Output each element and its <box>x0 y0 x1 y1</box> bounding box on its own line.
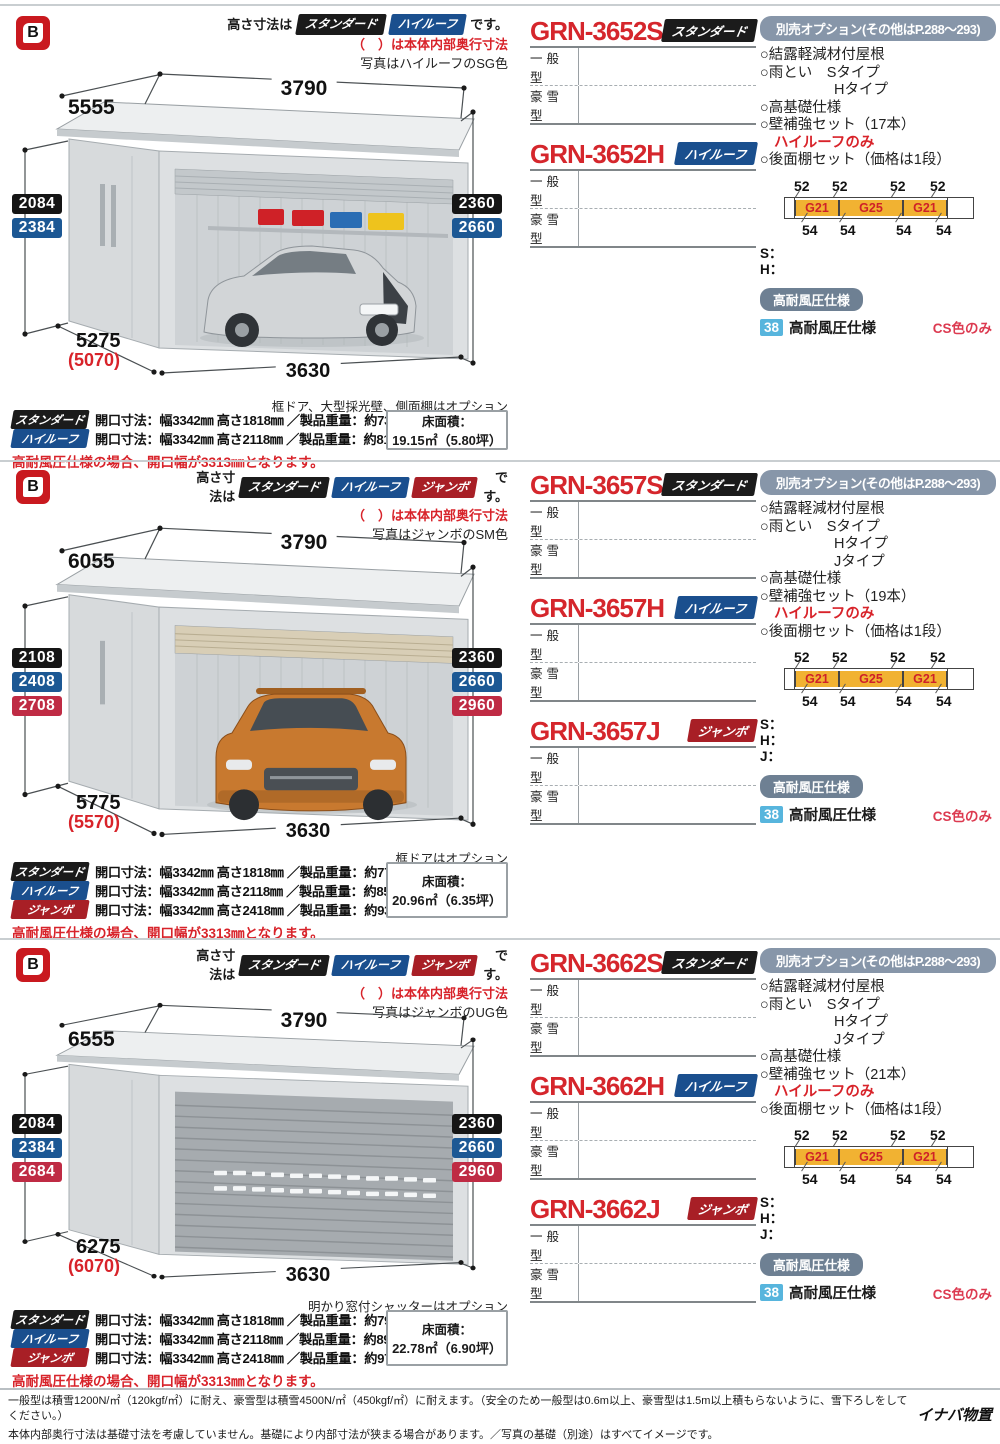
dim-depth-top: 6555 <box>68 1028 115 1052</box>
price-cell <box>578 209 756 246</box>
model-block: GRN-3652H ハイルーフ 一般型 豪雪型 <box>530 139 756 248</box>
brand-b-icon: B <box>16 16 50 50</box>
price-cell <box>578 86 756 123</box>
price-cell <box>578 625 756 662</box>
option-item: ○壁補強セット（17本） <box>760 117 996 135</box>
option-item: ○高基礎仕様 <box>760 1049 996 1067</box>
height-chip: 2384 <box>12 1138 62 1158</box>
model-name: GRN-3662J <box>530 1196 660 1222</box>
badge-highroof: ハイルーフ <box>674 1074 758 1097</box>
dim-depth-inner: (5570) <box>68 812 120 833</box>
height-chips-left: 2084 2384 2684 <box>12 1114 62 1182</box>
options-panel: 別売オプション(その他はP.288～293) ○結露軽減材付屋根 ○雨とい Sタ… <box>760 470 996 825</box>
height-chip: 2408 <box>12 672 62 692</box>
height-chip: 2108 <box>12 648 62 668</box>
options-header: 別売オプション(その他はP.288～293) <box>760 470 996 495</box>
badge-jumbo: ジャンボ <box>687 719 758 742</box>
page-footer: 一般型は積雪1200N/㎡（120kgf/㎡）に耐え、豪雪型は積雪4500N/㎡… <box>0 1388 1000 1444</box>
model-block: GRN-3662S スタンダード 一般型 豪雪型 <box>530 948 756 1057</box>
size-note-prefix: 高さ寸法は <box>227 15 292 34</box>
badge-standard: スタンダード <box>295 14 387 35</box>
dim-width-bottom: 3630 <box>276 820 341 843</box>
height-chip: 2360 <box>452 1114 502 1134</box>
model-name: GRN-3662H <box>530 1073 664 1099</box>
shelf-size-lines: S： H： J： <box>760 1195 996 1243</box>
dim-width-bottom: 3630 <box>276 1264 341 1287</box>
closed-shutter <box>175 1092 453 1261</box>
price-cell <box>578 1103 756 1140</box>
option-item: ○雨とい Sタイプ <box>760 65 996 83</box>
price-table: 一般型 豪雪型 <box>530 625 756 702</box>
price-cell <box>578 171 756 208</box>
spec-badge-highroof: ハイルーフ <box>10 881 89 900</box>
option-note: ハイルーフのみ <box>760 1084 996 1102</box>
model-list: GRN-3662S スタンダード 一般型 豪雪型 GRN-3662H ハイルーフ… <box>530 948 756 1317</box>
option-item: ○壁補強セット（19本） <box>760 589 996 607</box>
height-chips-right: 2360 2660 <box>452 194 502 238</box>
height-chip: 2660 <box>452 1138 502 1158</box>
model-list: GRN-3652S スタンダード 一般型 豪雪型 GRN-3652H ハイルーフ… <box>530 16 756 262</box>
spec-table: スタンダード 開口寸法：幅3342㎜ 高さ1818㎜ ／製品重量：約770kg … <box>12 862 508 942</box>
price-table: 一般型 豪雪型 <box>530 980 756 1057</box>
option-note: ハイルーフのみ <box>760 135 996 153</box>
size-note-suffix: です。 <box>470 15 508 34</box>
height-chip: 2960 <box>452 696 502 716</box>
price-table: 一般型 豪雪型 <box>530 748 756 825</box>
model-name: GRN-3652S <box>530 18 663 44</box>
wind-opening-note: 高耐風圧仕様の場合、開口幅が3313㎜となります。 <box>12 1370 508 1390</box>
brand-b-icon: B <box>16 470 50 504</box>
dim-depth-inner: (6070) <box>68 1256 120 1277</box>
height-chip: 2660 <box>452 672 502 692</box>
cs-color-note: CS色のみ <box>933 1283 992 1303</box>
dim-depth-top: 6055 <box>68 550 115 574</box>
badge-standard: スタンダード <box>661 473 758 496</box>
garage-illustration: 3790 6055 2108 2408 2708 2360 2660 2960 … <box>12 520 506 858</box>
product-section-grn-3662: B 高さ寸法は スタンダード ハイルーフ ジャンボ です。 （ ）は本体内部奥行… <box>0 938 1000 1390</box>
shelf-size-lines: S： H： J： <box>760 717 996 765</box>
page-ref-badge: 38 <box>760 806 783 823</box>
price-cell <box>578 1018 756 1055</box>
height-chip: 2960 <box>452 1162 502 1182</box>
brand-b-icon: B <box>16 948 50 982</box>
shelf-size-lines: S： H： <box>760 246 996 278</box>
badge-jumbo: ジャンボ <box>687 1197 758 1220</box>
model-list: GRN-3657S スタンダード 一般型 豪雪型 GRN-3657H ハイルーフ… <box>530 470 756 839</box>
model-name: GRN-3657H <box>530 595 664 621</box>
spec-badge-highroof: ハイルーフ <box>10 1329 89 1348</box>
height-chips-left: 2084 2384 <box>12 194 62 238</box>
spec-badge-jumbo: ジャンボ <box>10 1348 89 1367</box>
option-item: ○雨とい Sタイプ <box>760 997 996 1015</box>
option-subitem: Jタイプ <box>760 1032 996 1050</box>
brand-b-letter: B <box>23 23 43 43</box>
height-chip: 2360 <box>452 648 502 668</box>
rear-shelf-diagram: 52 52 52 52 G21 G25 G21 54 54 54 54 <box>784 649 980 713</box>
option-item: ○雨とい Sタイプ <box>760 519 996 537</box>
brand-b-letter: B <box>23 955 43 975</box>
model-name: GRN-3652H <box>530 141 664 167</box>
rear-shelf-diagram: 52 52 52 52 G21 G25 G21 54 54 54 54 <box>784 178 980 242</box>
model-name: GRN-3662S <box>530 950 663 976</box>
price-cell <box>578 663 756 700</box>
dim-width-top: 3790 <box>272 1009 337 1033</box>
model-name: GRN-3657S <box>530 472 663 498</box>
spec-table: スタンダード 開口寸法：幅3342㎜ 高さ1818㎜ ／製品重量：約797kg … <box>12 1310 508 1390</box>
option-subitem: Hタイプ <box>760 82 996 100</box>
catalog-page: B 高さ寸法は スタンダード ハイルーフ です。 （ ）は本体内部奥行寸法 写真… <box>0 0 1000 1444</box>
price-cell <box>578 540 756 577</box>
price-cell <box>578 748 756 785</box>
height-chip: 2708 <box>12 696 62 716</box>
options-panel: 別売オプション(その他はP.288～293) ○結露軽減材付屋根 ○雨とい Sタ… <box>760 948 996 1303</box>
height-chip: 2384 <box>12 218 62 238</box>
inner-depth-note: （ ）は本体内部奥行寸法 <box>190 35 508 54</box>
price-cell <box>578 502 756 539</box>
model-block: GRN-3652S スタンダード 一般型 豪雪型 <box>530 16 756 125</box>
price-cell <box>578 980 756 1017</box>
spec-badge-standard: スタンダード <box>10 410 89 429</box>
option-item: ○結露軽減材付屋根 <box>760 501 996 519</box>
footer-note-2: 本体内部奥行寸法は基礎寸法を考慮していません。基礎により内部寸法が狭まる場合があ… <box>8 1428 992 1443</box>
price-cell <box>578 1226 756 1263</box>
price-table: 一般型 豪雪型 <box>530 171 756 248</box>
option-item: ○高基礎仕様 <box>760 571 996 589</box>
wind-spec-row: 38 高耐風圧仕様 CS色のみ <box>760 804 996 825</box>
badge-standard: スタンダード <box>661 951 758 974</box>
cs-color-note: CS色のみ <box>933 805 992 825</box>
dim-width-bottom: 3630 <box>276 360 341 383</box>
spec-badge-standard: スタンダード <box>10 862 89 881</box>
height-chip: 2660 <box>452 218 502 238</box>
wind-spec-header: 高耐風圧仕様 <box>760 288 863 311</box>
option-subitem: Hタイプ <box>760 1014 996 1032</box>
spec-badge-highroof: ハイルーフ <box>10 429 89 448</box>
height-chips-left: 2108 2408 2708 <box>12 648 62 716</box>
footer-note-1: 一般型は積雪1200N/㎡（120kgf/㎡）に耐え、豪雪型は積雪4500N/㎡… <box>8 1394 992 1424</box>
badge-highroof: ハイルーフ <box>331 477 410 498</box>
option-subitem: Jタイプ <box>760 554 996 572</box>
option-item: ○後面棚セット（価格は1段） <box>760 624 996 642</box>
option-note: ハイルーフのみ <box>760 606 996 624</box>
option-item: ○高基礎仕様 <box>760 100 996 118</box>
option-item: ○後面棚セット（価格は1段） <box>760 1102 996 1120</box>
height-chip: 2084 <box>12 1114 62 1134</box>
dim-width-top: 3790 <box>272 77 337 101</box>
height-chip: 2084 <box>12 194 62 214</box>
wind-spec-header: 高耐風圧仕様 <box>760 775 863 798</box>
wind-spec-row: 38 高耐風圧仕様 CS色のみ <box>760 1282 996 1303</box>
badge-jumbo: ジャンボ <box>411 955 478 976</box>
model-block: GRN-3657S スタンダード 一般型 豪雪型 <box>530 470 756 579</box>
badge-jumbo: ジャンボ <box>411 477 478 498</box>
cs-color-note: CS色のみ <box>933 317 992 337</box>
brand-b-letter: B <box>23 477 43 497</box>
badge-standard: スタンダード <box>661 19 758 42</box>
option-item: ○結露軽減材付屋根 <box>760 47 996 65</box>
option-item: ○結露軽減材付屋根 <box>760 979 996 997</box>
floor-area-box: 床面積： 20.96㎡（6.35坪） <box>386 862 508 918</box>
floor-area-box: 床面積： 19.15㎡（5.80坪） <box>386 410 508 450</box>
inaba-logo: イナバ物置 <box>917 1404 992 1425</box>
dim-width-top: 3790 <box>272 531 337 555</box>
model-block: GRN-3662H ハイルーフ 一般型 豪雪型 <box>530 1071 756 1180</box>
wind-spec-row: 38 高耐風圧仕様 CS色のみ <box>760 317 996 338</box>
garage-illustration: 3790 6555 2084 2384 2684 2360 2660 2960 … <box>12 998 506 1298</box>
height-chips-right: 2360 2660 2960 <box>452 1114 502 1182</box>
badge-standard: スタンダード <box>238 477 330 498</box>
option-subitem: Hタイプ <box>760 536 996 554</box>
model-name: GRN-3657J <box>530 718 660 744</box>
badge-highroof: ハイルーフ <box>674 142 758 165</box>
option-item: ○壁補強セット（21本） <box>760 1067 996 1085</box>
options-panel: 別売オプション(その他はP.288～293) ○結露軽減材付屋根 ○雨とい Sタ… <box>760 16 996 338</box>
product-section-grn-3652: B 高さ寸法は スタンダード ハイルーフ です。 （ ）は本体内部奥行寸法 写真… <box>0 8 1000 460</box>
product-section-grn-3657: B 高さ寸法は スタンダード ハイルーフ ジャンボ です。 （ ）は本体内部奥行… <box>0 460 1000 940</box>
badge-highroof: ハイルーフ <box>674 596 758 619</box>
page-ref-badge: 38 <box>760 319 783 336</box>
model-block: GRN-3657H ハイルーフ 一般型 豪雪型 <box>530 593 756 702</box>
height-chip: 2360 <box>452 194 502 214</box>
badge-highroof: ハイルーフ <box>388 14 467 35</box>
rear-shelf-diagram: 52 52 52 52 G21 G25 G21 54 54 54 54 <box>784 1127 980 1191</box>
price-table: 一般型 豪雪型 <box>530 48 756 125</box>
height-chip: 2684 <box>12 1162 62 1182</box>
height-chips-right: 2360 2660 2960 <box>452 648 502 716</box>
garage-illustration: 3790 5555 2084 2384 2360 2660 5275 (5070… <box>12 66 506 396</box>
spec-badge-standard: スタンダード <box>10 1310 89 1329</box>
price-cell <box>578 786 756 823</box>
price-cell <box>578 1264 756 1301</box>
spec-badge-jumbo: ジャンボ <box>10 900 89 919</box>
floor-area-box: 床面積： 22.78㎡（6.90坪） <box>386 1310 508 1366</box>
badge-standard: スタンダード <box>238 955 330 976</box>
size-note: 高さ寸法は スタンダード ハイルーフ です。 （ ）は本体内部奥行寸法 写真はハ… <box>190 14 508 73</box>
dim-depth-inner: (5070) <box>68 350 120 371</box>
page-ref-badge: 38 <box>760 1284 783 1301</box>
options-header: 別売オプション(その他はP.288～293) <box>760 948 996 973</box>
option-item: ○後面棚セット（価格は1段） <box>760 152 996 170</box>
options-header: 別売オプション(その他はP.288～293) <box>760 16 996 41</box>
wind-spec-header: 高耐風圧仕様 <box>760 1253 863 1276</box>
model-block: GRN-3662J ジャンボ 一般型 豪雪型 <box>530 1194 756 1303</box>
badge-highroof: ハイルーフ <box>331 955 410 976</box>
price-cell <box>578 48 756 85</box>
model-block: GRN-3657J ジャンボ 一般型 豪雪型 <box>530 716 756 825</box>
price-table: 一般型 豪雪型 <box>530 1103 756 1180</box>
price-table: 一般型 豪雪型 <box>530 1226 756 1303</box>
price-cell <box>578 1141 756 1178</box>
dim-depth-top: 5555 <box>68 96 115 120</box>
price-table: 一般型 豪雪型 <box>530 502 756 579</box>
